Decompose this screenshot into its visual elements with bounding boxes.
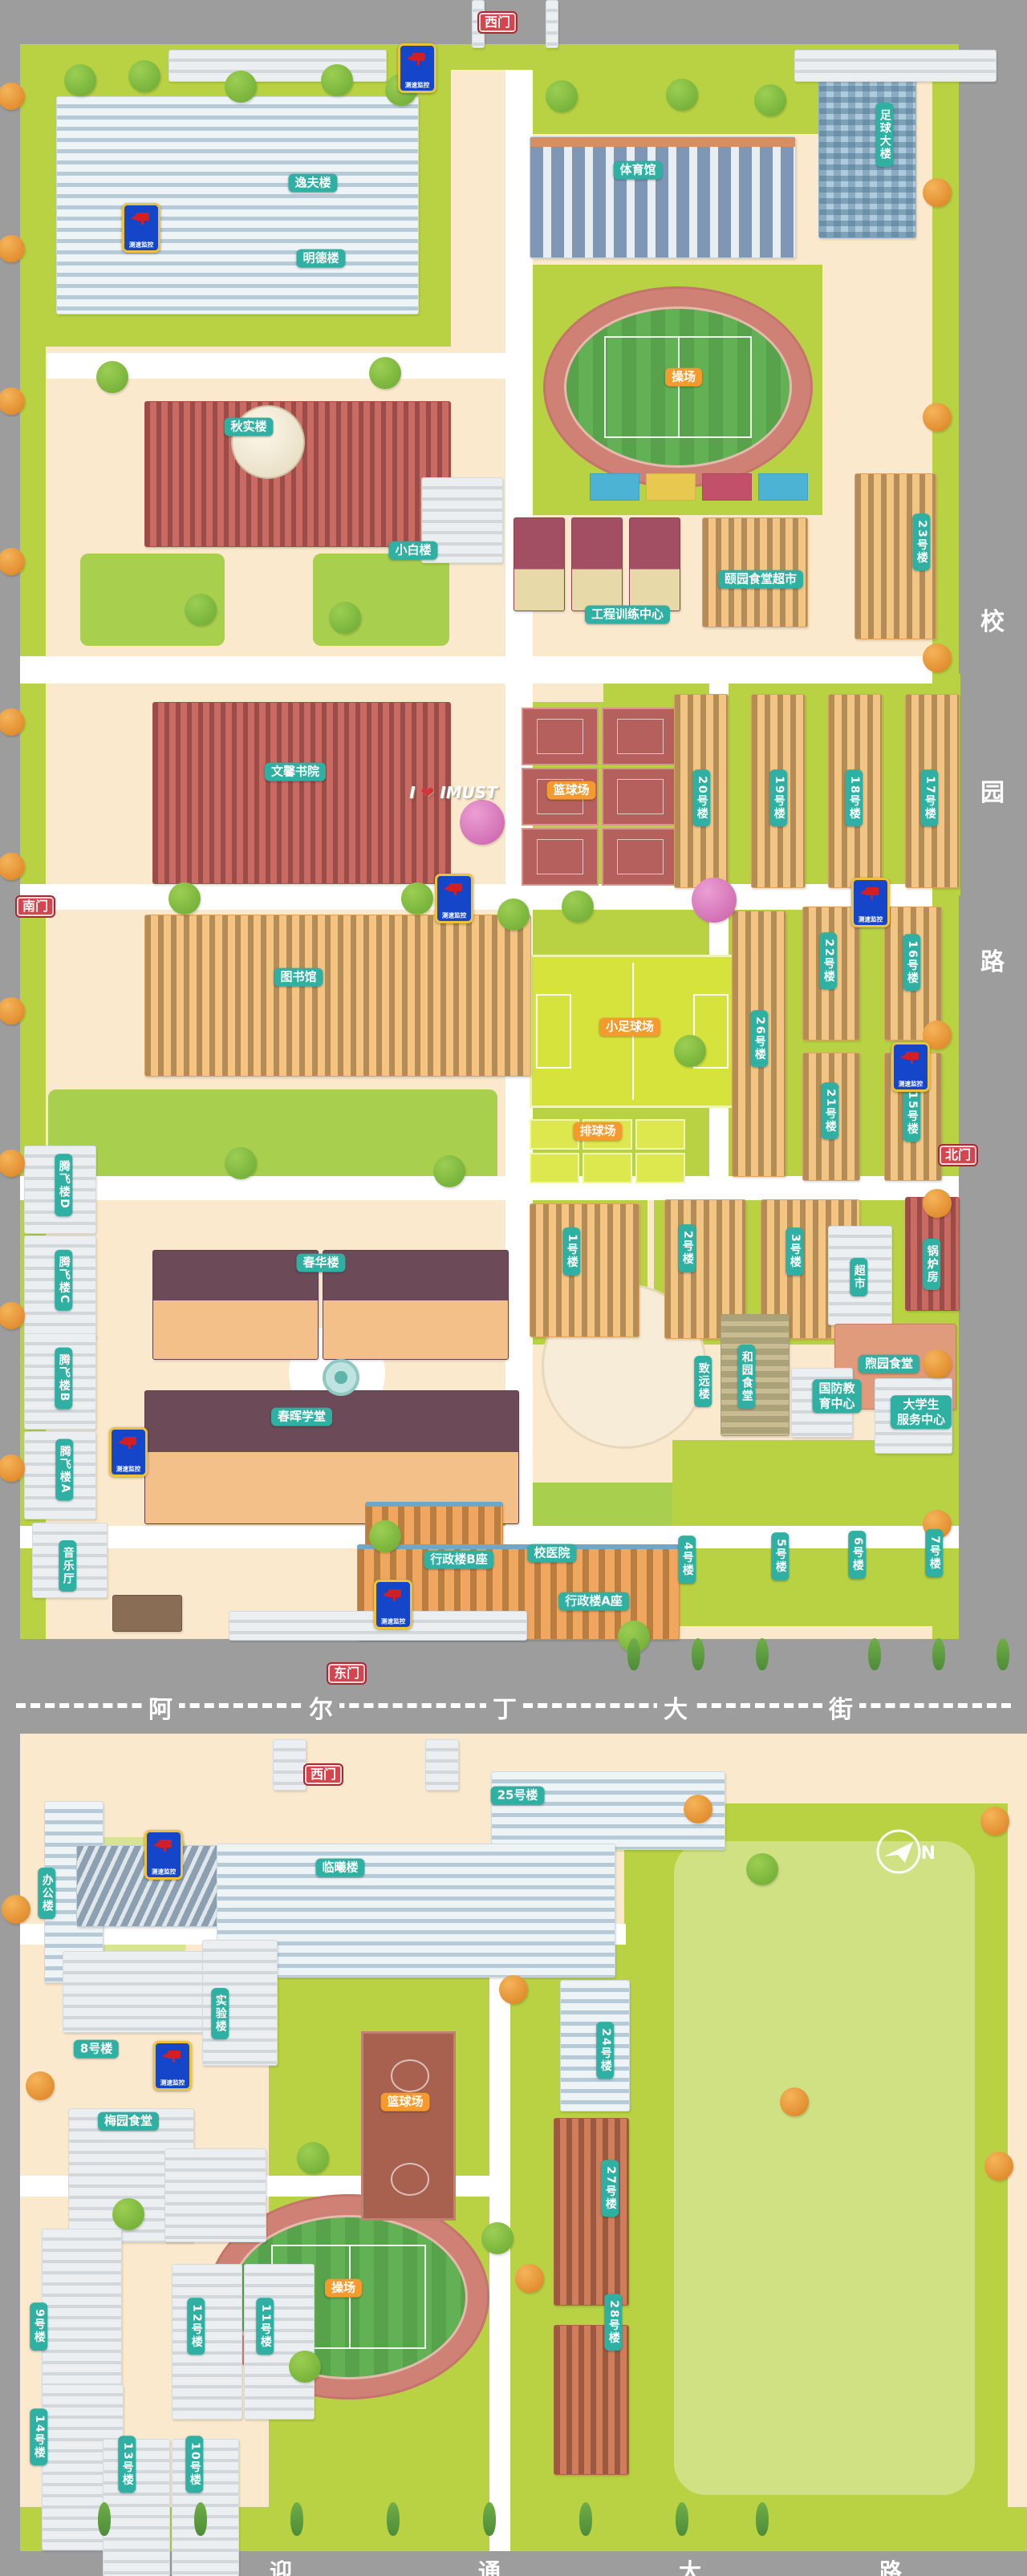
- gatehouse: [794, 50, 997, 82]
- tree-icon: [401, 882, 433, 915]
- campus-road-name-char: 园: [980, 773, 1005, 808]
- basketball-court: [522, 708, 599, 765]
- building-label: 临曦楼: [315, 1859, 364, 1877]
- poplar-tree-icon: [627, 1638, 640, 1670]
- building-label: 10号楼: [185, 2436, 203, 2493]
- building-label: 办公楼: [38, 1868, 55, 1919]
- poplar-tree-icon: [997, 1638, 1009, 1670]
- poplar-tree-icon: [483, 2502, 496, 2536]
- building-label: 3号楼: [785, 1227, 803, 1276]
- building-label: 小足球场: [599, 1018, 660, 1036]
- building-label: 16号楼: [903, 934, 920, 991]
- tree-icon: [369, 1520, 401, 1552]
- sign-text: 测速监控: [442, 912, 467, 920]
- building-label: 9号楼: [30, 2302, 47, 2351]
- tree-icon: [321, 64, 353, 96]
- lawn: [313, 554, 449, 646]
- building-label: 排球场: [573, 1122, 622, 1141]
- tree-icon: [96, 361, 128, 393]
- tree-icon: [666, 79, 698, 111]
- pink-tree-icon: [692, 878, 737, 923]
- building-1: [530, 1203, 639, 1337]
- sign-text: 测速监控: [899, 1081, 923, 1089]
- speed-camera-sign: 测速监控: [122, 203, 160, 253]
- speed-camera-sign: 测速监控: [144, 1830, 183, 1880]
- autumn-tree-icon: [923, 178, 952, 207]
- athletic-track-upper-mid: [678, 336, 680, 438]
- tree-icon: [562, 890, 594, 923]
- building-label: 梅园食堂: [98, 2112, 159, 2131]
- poplar-tree-icon: [676, 2502, 688, 2536]
- poplar-tree-icon: [98, 2502, 111, 2536]
- building-label: 腾飞楼C: [55, 1250, 72, 1311]
- colored-tile: [590, 473, 639, 501]
- soccer-tower-building: [818, 60, 916, 238]
- speed-camera-sign: 测速监控: [851, 878, 890, 927]
- tree-icon: [225, 1147, 257, 1179]
- speed-camera-sign: 测速监控: [398, 43, 436, 93]
- fountain: [323, 1359, 359, 1396]
- building-label: 国防教 育中心: [812, 1379, 861, 1413]
- path: [20, 656, 932, 684]
- compass-icon: N: [875, 1826, 932, 1884]
- building-label: 27号楼: [601, 2160, 619, 2217]
- inner-field: [674, 1841, 975, 2495]
- camera-icon: [152, 1838, 175, 1852]
- building-label: 篮球场: [546, 781, 595, 800]
- building-label: 操场: [665, 368, 702, 387]
- gate-pillar: [546, 0, 558, 48]
- bottom-street-name-char: 大: [672, 2554, 708, 2576]
- building-label: 体育馆: [613, 161, 662, 180]
- building-label: 23号楼: [912, 513, 930, 570]
- west-gate-pillar: [273, 1739, 306, 1791]
- autumn-tree-icon: [780, 2087, 809, 2116]
- gymnasium-building: [530, 136, 796, 258]
- bottom-street-name-char: 迎: [263, 2554, 298, 2576]
- street-name-char: 阿: [142, 1690, 179, 1725]
- compass-n-label: N: [921, 1844, 936, 1864]
- street-name-char: 街: [822, 1690, 859, 1725]
- street-name-char: 大: [657, 1690, 694, 1725]
- imust-sculpture: I ❤ IMUST: [409, 783, 497, 802]
- building-label: 18号楼: [845, 769, 863, 826]
- building-label: 实验楼: [211, 1988, 229, 2039]
- tree-icon: [497, 899, 530, 931]
- building-label: 文馨书院: [265, 763, 326, 781]
- tree-icon: [674, 1035, 706, 1067]
- camera-icon: [859, 886, 882, 900]
- tree-icon: [185, 594, 217, 626]
- building-label: 煦园食堂: [859, 1355, 919, 1373]
- autumn-tree-icon: [499, 1975, 528, 2004]
- training-hall: [571, 517, 623, 611]
- tree-icon: [112, 2198, 144, 2230]
- building-label: 行政楼A座: [558, 1592, 629, 1611]
- autumn-tree-icon: [515, 2264, 544, 2293]
- building-label: 1号楼: [562, 1227, 580, 1276]
- sculpture-heart: ❤: [421, 783, 435, 802]
- yifu-building: [56, 96, 419, 314]
- building-label: 25号楼: [491, 1787, 545, 1805]
- campus-road-name-char: 校: [980, 602, 1005, 637]
- pitch-line: [536, 994, 571, 1069]
- training-hall: [629, 517, 680, 611]
- tree-icon: [128, 60, 160, 92]
- speed-camera-sign: 测速监控: [109, 1427, 148, 1477]
- sculpture-suf: IMUST: [440, 783, 497, 802]
- poplar-tree-icon: [756, 1638, 769, 1670]
- building-label: 春华楼: [296, 1254, 345, 1272]
- building-label: 22号楼: [819, 932, 837, 989]
- building-label: 校医院: [527, 1544, 576, 1563]
- left-road: [0, 44, 20, 1639]
- speed-camera-sign: 测速监控: [435, 874, 473, 923]
- sign-text: 测速监控: [405, 82, 430, 90]
- basketball-court: [602, 828, 679, 886]
- gate-monument: [112, 1595, 182, 1632]
- gate-label: 北门: [938, 1144, 978, 1166]
- tree-icon: [289, 2351, 321, 2383]
- poplar-tree-icon: [932, 1638, 945, 1670]
- autumn-tree-icon: [2, 1895, 30, 1924]
- building-label: 腾飞楼D: [55, 1154, 72, 1216]
- building-label: 和园食堂: [737, 1345, 755, 1409]
- sign-text: 测速监控: [859, 916, 883, 924]
- building-label: 足球大楼: [875, 103, 893, 167]
- building-label: 明德楼: [296, 249, 345, 268]
- building-label: 小白楼: [388, 542, 437, 560]
- camera-icon: [161, 2049, 184, 2063]
- gate-label: 南门: [15, 895, 55, 918]
- gatehouse: [168, 50, 387, 82]
- athletic-track-upper: [546, 289, 810, 485]
- autumn-tree-icon: [984, 2152, 1013, 2180]
- speed-camera-sign: 测速监控: [153, 2041, 192, 2091]
- building-label: 24号楼: [596, 2022, 614, 2079]
- poplar-tree-icon: [579, 2502, 592, 2536]
- building-label: 6号楼: [848, 1531, 866, 1579]
- building-label: 11号楼: [256, 2298, 274, 2355]
- tree-icon: [433, 1155, 465, 1187]
- library-building: [144, 915, 531, 1077]
- heyuan-canteen-building: [721, 1314, 790, 1436]
- basketball-court: [602, 768, 679, 826]
- autumn-tree-icon: [923, 1349, 952, 1378]
- west-gate-pillar: [425, 1739, 459, 1791]
- colored-tile: [758, 473, 808, 501]
- poplar-tree-icon: [290, 2502, 303, 2536]
- tree-icon: [168, 882, 201, 915]
- tree-icon: [225, 71, 257, 103]
- autumn-tree-icon: [923, 1189, 952, 1218]
- camera-icon: [899, 1050, 922, 1065]
- sign-text: 测速监控: [152, 1868, 177, 1876]
- building-label: 14号楼: [30, 2408, 47, 2465]
- poplar-tree-icon: [194, 2502, 207, 2536]
- lawn: [48, 1089, 497, 1184]
- sculpture-pre: I: [409, 783, 415, 802]
- compass-circle-icon: [875, 1826, 926, 1877]
- autumn-tree-icon: [923, 403, 952, 432]
- court-circle: [391, 2163, 430, 2196]
- left-road-lower: [0, 1734, 20, 2551]
- bottom-street-name-char: 通: [472, 2554, 507, 2576]
- street-name-char: 尔: [302, 1690, 339, 1725]
- colored-tile: [646, 473, 696, 501]
- building-label: 秋实楼: [224, 418, 273, 436]
- building-label: 4号楼: [678, 1535, 696, 1584]
- building-label: 17号楼: [920, 769, 938, 826]
- building-label: 篮球场: [380, 2093, 429, 2112]
- building-label: 致远楼: [694, 1356, 712, 1407]
- autumn-tree-icon: [26, 2071, 55, 2100]
- camera-icon: [382, 1588, 404, 1602]
- street-name-char: 丁: [486, 1690, 523, 1725]
- building-label: 5号楼: [771, 1532, 789, 1580]
- tree-icon: [297, 2142, 329, 2174]
- tree-icon: [754, 84, 786, 116]
- building-label: 颐园食堂超市: [718, 570, 803, 589]
- autumn-tree-icon: [923, 643, 952, 672]
- sign-text: 测速监控: [160, 2079, 185, 2087]
- building-label: 操场: [325, 2279, 362, 2298]
- building-label: 大学生 服务中心: [891, 1395, 952, 1429]
- tree-icon: [369, 357, 401, 389]
- tree-icon: [746, 1853, 778, 1885]
- building-13: [103, 2439, 170, 2576]
- volleyball-court: [583, 1153, 632, 1183]
- building-label: 19号楼: [769, 769, 787, 826]
- autumn-tree-icon: [684, 1795, 712, 1823]
- volleyball-court: [635, 1119, 685, 1150]
- poplar-tree-icon: [868, 1638, 881, 1670]
- campus-road-name-char: 路: [980, 942, 1005, 977]
- building-label: 7号楼: [925, 1529, 943, 1577]
- sign-text: 测速监控: [381, 1618, 406, 1626]
- building-label: 逸夫楼: [288, 174, 337, 193]
- building-24: [560, 1980, 630, 2112]
- volleyball-court: [635, 1153, 685, 1183]
- building-11: [244, 2264, 315, 2420]
- building-12: [172, 2264, 242, 2420]
- campus-road-right: [959, 44, 1027, 1639]
- wenxin-building: [152, 702, 451, 884]
- tree-icon: [329, 602, 361, 634]
- volleyball-court: [530, 1119, 579, 1150]
- court-circle: [391, 2059, 430, 2092]
- chunhua-building: [152, 1250, 319, 1360]
- tree-icon: [481, 2222, 513, 2254]
- small-building: [164, 2148, 266, 2242]
- sign-text: 测速监控: [129, 241, 154, 249]
- building-label: 26号楼: [750, 1010, 768, 1067]
- poplar-tree-icon: [756, 2502, 769, 2536]
- building-label: 腾飞楼A: [55, 1439, 73, 1501]
- building-label: 音乐厅: [59, 1540, 76, 1592]
- tree-icon: [64, 64, 96, 96]
- camera-icon: [130, 211, 152, 225]
- poplar-tree-icon: [387, 2502, 400, 2536]
- building-label: 图书馆: [274, 968, 323, 987]
- basketball-court-lower: [361, 2031, 456, 2221]
- gate-label: 西门: [303, 1763, 343, 1786]
- speed-camera-sign: 测速监控: [891, 1042, 930, 1092]
- building-label: 锅炉房: [923, 1239, 940, 1290]
- building-label: 超市: [850, 1258, 867, 1296]
- poplar-tree-icon: [692, 1638, 704, 1670]
- building-label: 8号楼: [74, 2040, 119, 2059]
- building-label: 21号楼: [821, 1082, 838, 1139]
- basketball-court: [522, 828, 599, 886]
- building-label: 行政楼B座: [424, 1551, 493, 1569]
- chunhua-building: [323, 1250, 509, 1360]
- building-label: 13号楼: [118, 2436, 136, 2493]
- qiushi-dome: [231, 405, 305, 479]
- building-label: 15号楼: [903, 1085, 920, 1142]
- sign-text: 测速监控: [116, 1466, 141, 1474]
- autumn-tree-icon: [980, 1807, 1009, 1836]
- camera-icon: [117, 1435, 140, 1450]
- building-label: 20号楼: [692, 769, 710, 826]
- building-label: 春晖学堂: [271, 1408, 332, 1426]
- building-label: 28号楼: [604, 2294, 622, 2351]
- pink-tree-icon: [460, 800, 505, 845]
- tree-icon: [546, 80, 578, 112]
- campus-map-illustration: 阿尔丁大街校园路迎通大路逸夫楼明德楼体育馆足球大楼操场秋实楼小白楼工程训练中心颐…: [0, 0, 1027, 2576]
- bottom-street-name-char: 路: [873, 2554, 908, 2576]
- training-hall: [513, 517, 565, 611]
- speed-camera-sign: 测速监控: [374, 1580, 412, 1629]
- gate-label: 东门: [327, 1662, 367, 1685]
- building-label: 2号楼: [678, 1224, 696, 1272]
- building-label: 腾飞楼B: [55, 1348, 72, 1410]
- volleyball-court: [530, 1153, 579, 1183]
- camera-icon: [443, 882, 465, 896]
- camera-icon: [406, 51, 428, 66]
- building-label: 工程训练中心: [585, 606, 670, 624]
- gate-label: 西门: [477, 11, 518, 34]
- colored-tile: [702, 473, 752, 501]
- basketball-court: [602, 708, 679, 765]
- building-label: 12号楼: [187, 2298, 205, 2355]
